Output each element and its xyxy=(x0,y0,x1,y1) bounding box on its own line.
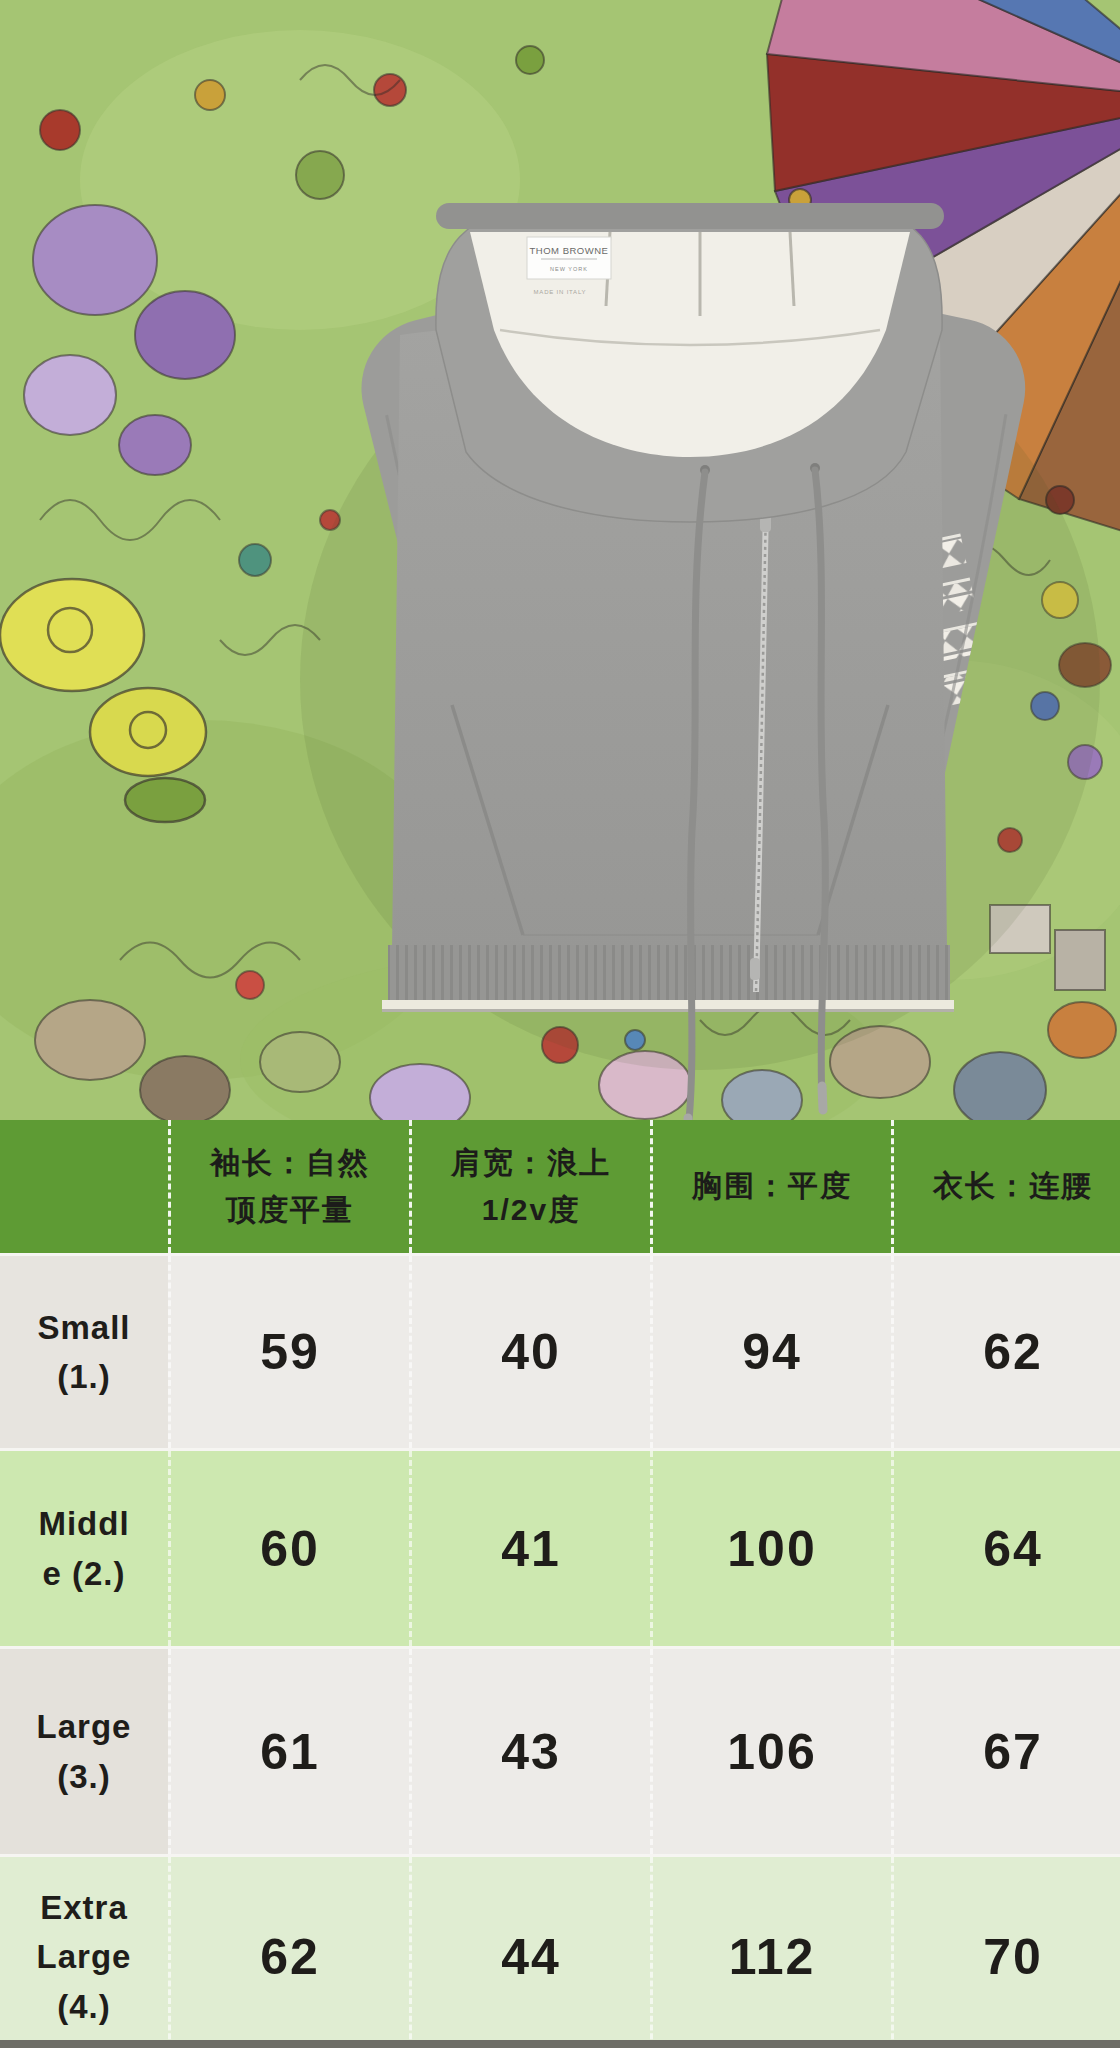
size-label-line: Large xyxy=(37,1932,132,1982)
header-line: 衣长：连腰 xyxy=(933,1163,1093,1210)
product-detail-page: THOM BROWNE NEW YORK MADE IN ITALY xyxy=(0,0,1120,2048)
header-line: 胸围：平度 xyxy=(692,1163,852,1210)
sleeve-length-value: 60 xyxy=(168,1451,409,1646)
sleeve-length-value: 59 xyxy=(168,1256,409,1448)
header-cell-shoulder-width: 肩宽：浪上 1/2v度 xyxy=(409,1120,650,1253)
chest-value: 100 xyxy=(650,1451,891,1646)
hem-band xyxy=(388,945,950,1002)
header-line: 袖长：自然 xyxy=(210,1140,370,1187)
header-cell-garment-length: 衣长：连腰 xyxy=(891,1120,1120,1253)
shoulder-width-value: 43 xyxy=(409,1649,650,1854)
size-label: Middl e (2.) xyxy=(0,1451,168,1646)
header-cell-empty xyxy=(0,1120,168,1253)
shoulder-width-value: 44 xyxy=(409,1857,650,2048)
shoulder-width-value: 40 xyxy=(409,1256,650,1448)
header-cell-sleeve-length: 袖长：自然 顶度平量 xyxy=(168,1120,409,1253)
garment-length-value: 64 xyxy=(891,1451,1120,1646)
header-line: 1/2v度 xyxy=(482,1187,580,1234)
shoulder-width-value: 41 xyxy=(409,1451,650,1646)
table-row-middle: Middl e (2.) 60 41 100 64 xyxy=(0,1448,1120,1646)
header-cell-chest: 胸围：平度 xyxy=(650,1120,891,1253)
brand-label: THOM BROWNE NEW YORK xyxy=(527,237,611,279)
sleeve-length-value: 62 xyxy=(168,1857,409,2048)
hem-edge xyxy=(382,1009,954,1012)
size-label-line: (4.) xyxy=(57,1982,111,2032)
garment-length-value: 70 xyxy=(891,1857,1120,2048)
header-line: 顶度平量 xyxy=(226,1187,354,1234)
size-label-line: (1.) xyxy=(57,1352,111,1402)
product-photo-svg: THOM BROWNE NEW YORK MADE IN ITALY xyxy=(0,0,1120,1120)
garment-length-value: 62 xyxy=(891,1256,1120,1448)
sleeve-length-value: 61 xyxy=(168,1649,409,1854)
zipper-pull-bottom xyxy=(750,958,760,980)
size-label-line: Large xyxy=(37,1702,132,1752)
hood-ribbed-edge xyxy=(436,203,944,229)
table-row-extra-large: Extra Large (4.) 62 44 112 70 xyxy=(0,1854,1120,2048)
drawstring-aglet-right xyxy=(822,1086,823,1110)
size-label: Large (3.) xyxy=(0,1649,168,1854)
size-chart-header-row: 袖长：自然 顶度平量 肩宽：浪上 1/2v度 胸围：平度 衣长：连腰 xyxy=(0,1120,1120,1253)
size-label: Small (1.) xyxy=(0,1256,168,1448)
size-label-line: Extra xyxy=(40,1883,128,1933)
table-row-large: Large (3.) 61 43 106 67 xyxy=(0,1646,1120,1854)
chest-value: 112 xyxy=(650,1857,891,2048)
size-label-line: e (2.) xyxy=(42,1549,125,1599)
hem-tipping-stripe xyxy=(382,1000,954,1009)
header-line: 肩宽：浪上 xyxy=(451,1140,611,1187)
hood: THOM BROWNE NEW YORK MADE IN ITALY xyxy=(436,203,944,522)
chest-value: 94 xyxy=(650,1256,891,1448)
product-photo: THOM BROWNE NEW YORK MADE IN ITALY xyxy=(0,0,1120,1120)
chest-value: 106 xyxy=(650,1649,891,1854)
table-row-small: Small (1.) 59 40 94 62 xyxy=(0,1253,1120,1448)
size-label-line: Small xyxy=(37,1303,130,1353)
size-label-line: (3.) xyxy=(57,1752,111,1802)
brand-label-city-text: NEW YORK xyxy=(550,266,588,272)
garment-length-value: 67 xyxy=(891,1649,1120,1854)
photo-bottom-edge xyxy=(0,2040,1120,2048)
size-chart-table: 袖长：自然 顶度平量 肩宽：浪上 1/2v度 胸围：平度 衣长：连腰 Small… xyxy=(0,1120,1120,2048)
origin-label-text: MADE IN ITALY xyxy=(534,289,587,295)
brand-label-text: THOM BROWNE xyxy=(530,245,609,256)
size-label-line: Middl xyxy=(38,1499,129,1549)
size-label: Extra Large (4.) xyxy=(0,1857,168,2048)
